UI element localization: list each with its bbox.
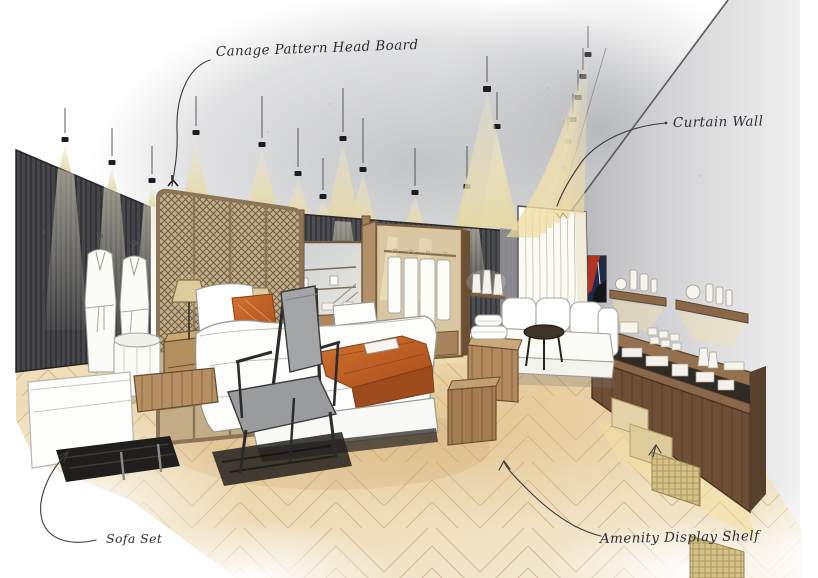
sketch-canvas: Canage Pattern Head Board Curtain Wall S… [0, 0, 818, 578]
interior-sketch: Canage Pattern Head Board Curtain Wall S… [0, 0, 818, 578]
wall-artwork [588, 256, 606, 302]
wall-bottle-shelf [466, 270, 506, 298]
annotation-label-sofa-set: Sofa Set [106, 531, 163, 546]
annotation-label-amenity-shelf: Amenity Display Shelf [598, 528, 761, 547]
annotation-label-curtain-wall: Curtain Wall [673, 113, 764, 131]
bathrobe [85, 234, 116, 372]
